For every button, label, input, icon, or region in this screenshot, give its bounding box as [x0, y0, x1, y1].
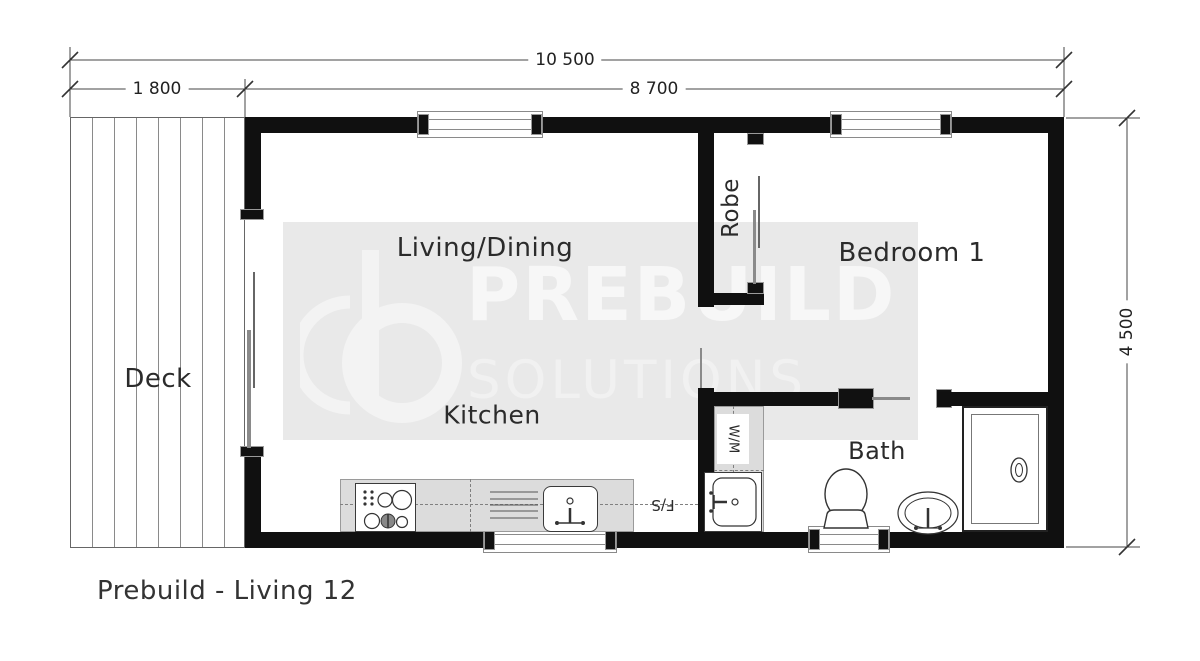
dim-overall-width: 10 500	[528, 50, 601, 70]
plan-title: Prebuild - Living 12	[97, 576, 357, 606]
label-bath: Bath	[848, 437, 906, 465]
dimension-lines	[0, 0, 1200, 661]
dim-building-width: 8 700	[623, 79, 686, 99]
label-kitchen: Kitchen	[443, 401, 540, 430]
label-robe: Robe	[718, 178, 744, 238]
label-deck: Deck	[124, 364, 191, 394]
dim-depth: 4 500	[1117, 301, 1137, 364]
label-living-dining: Living/Dining	[397, 233, 574, 263]
label-bedroom: Bedroom 1	[839, 238, 986, 268]
dim-deck-width: 1 800	[126, 79, 189, 99]
floor-plan: PREBUILD SOLUTIONS	[0, 0, 1200, 661]
